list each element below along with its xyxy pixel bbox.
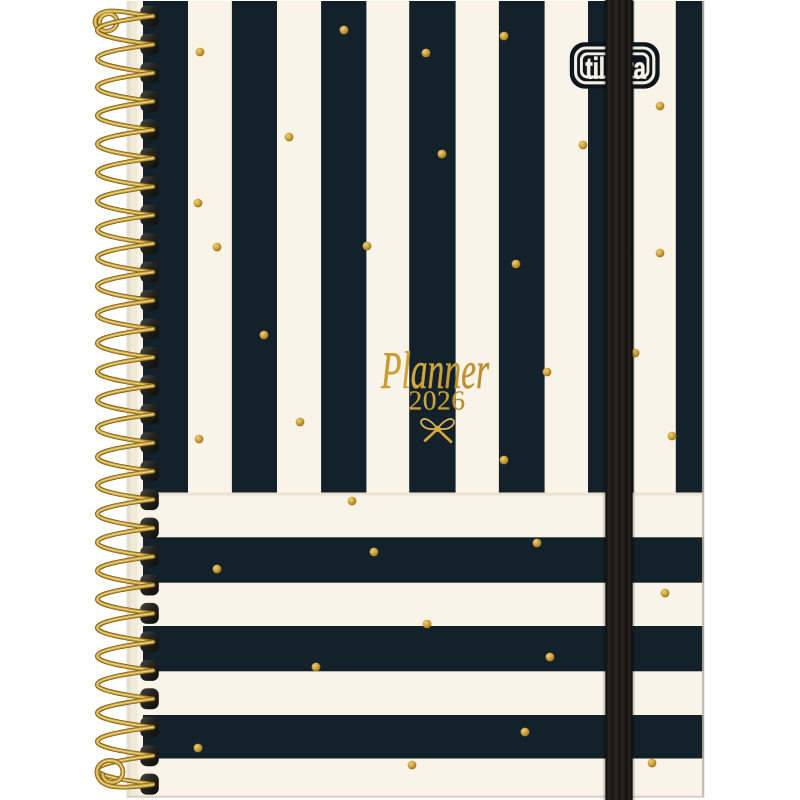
svg-text:2026: 2026 — [409, 385, 466, 416]
